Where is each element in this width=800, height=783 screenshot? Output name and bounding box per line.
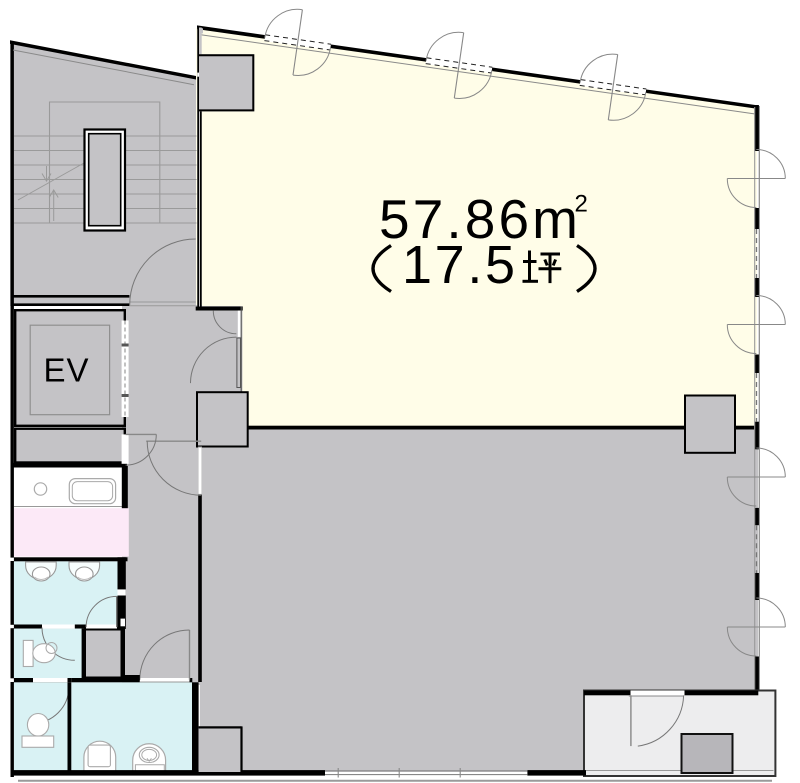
svg-text:17.5: 17.5: [402, 235, 515, 295]
svg-text:2: 2: [575, 191, 588, 218]
svg-text:EV: EV: [44, 352, 89, 389]
